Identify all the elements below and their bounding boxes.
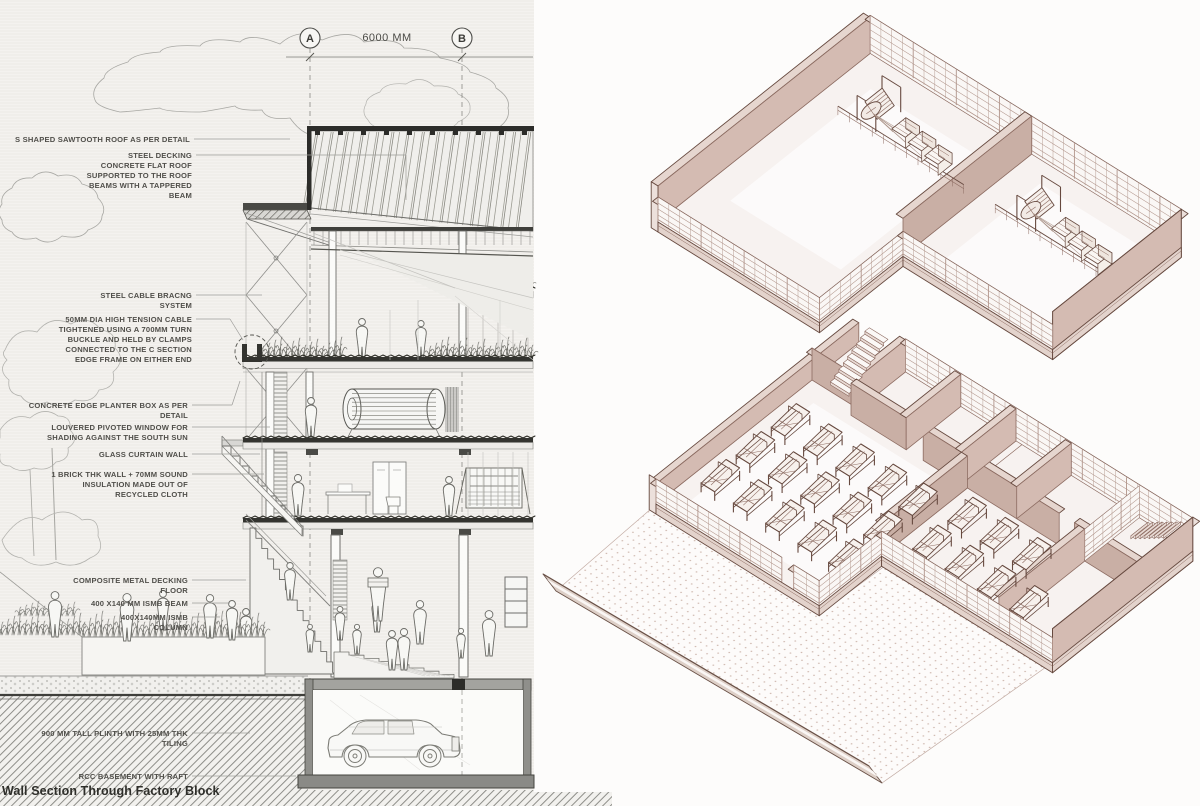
svg-text:RECYCLED CLOTH: RECYCLED CLOTH <box>115 490 188 499</box>
svg-text:INSULATION MADE OUT OF: INSULATION MADE OUT OF <box>82 480 188 489</box>
svg-text:COLUMN: COLUMN <box>153 623 188 632</box>
svg-text:CONNECTED TO THE C SECTION: CONNECTED TO THE C SECTION <box>65 345 192 354</box>
svg-text:COMPOSITE METAL DECKING: COMPOSITE METAL DECKING <box>73 576 188 585</box>
svg-text:400 X140 MM ISMB BEAM: 400 X140 MM ISMB BEAM <box>91 599 188 608</box>
svg-text:6000 MM: 6000 MM <box>362 32 411 44</box>
svg-text:EDGE FRAME ON EITHER END: EDGE FRAME ON EITHER END <box>75 355 192 364</box>
svg-text:400X140MM ISMB: 400X140MM ISMB <box>121 613 188 622</box>
svg-text:S SHAPED SAWTOOTH ROOF AS PER: S SHAPED SAWTOOTH ROOF AS PER DETAIL <box>15 135 190 144</box>
svg-text:TIGHTENED USING A 700MM TURN: TIGHTENED USING A 700MM TURN <box>59 325 192 334</box>
svg-text:CONCRETE EDGE PLANTER BOX AS P: CONCRETE EDGE PLANTER BOX AS PER <box>29 401 189 410</box>
svg-text:GLASS CURTAIN WALL: GLASS CURTAIN WALL <box>99 450 188 459</box>
svg-text:Wall Section Through Factory B: Wall Section Through Factory Block <box>2 784 220 798</box>
svg-text:FLOOR: FLOOR <box>160 586 188 595</box>
svg-text:STEEL DECKING: STEEL DECKING <box>128 151 192 160</box>
svg-text:STEEL CABLE BRACNG: STEEL CABLE BRACNG <box>100 291 192 300</box>
svg-text:900 MM TALL PLINTH WITH 25MM T: 900 MM TALL PLINTH WITH 25MM THK <box>41 729 188 738</box>
svg-text:TILING: TILING <box>162 739 188 748</box>
svg-text:CONCRETE FLAT ROOF: CONCRETE FLAT ROOF <box>101 161 192 170</box>
svg-text:DETAIL: DETAIL <box>160 411 188 420</box>
svg-text:SYSTEM: SYSTEM <box>160 301 192 310</box>
svg-text:LOUVERED PIVOTED WINDOW FOR: LOUVERED PIVOTED WINDOW FOR <box>51 423 188 432</box>
svg-text:SUPPORTED TO THE ROOF: SUPPORTED TO THE ROOF <box>87 171 192 180</box>
svg-text:BEAMS WITH A TAPPERED: BEAMS WITH A TAPPERED <box>89 181 192 190</box>
svg-text:1 BRICK THK WALL + 70MM SOUND: 1 BRICK THK WALL + 70MM SOUND <box>51 470 188 479</box>
svg-text:BUCKLE AND HELD BY CLAMPS: BUCKLE AND HELD BY CLAMPS <box>68 335 192 344</box>
svg-text:BEAM: BEAM <box>169 191 192 200</box>
svg-text:A: A <box>306 33 314 45</box>
svg-text:B: B <box>458 33 466 45</box>
svg-text:RCC BASEMENT WITH RAFT: RCC BASEMENT WITH RAFT <box>79 772 189 781</box>
svg-text:50MM DIA HIGH TENSION CABLE: 50MM DIA HIGH TENSION CABLE <box>65 315 192 324</box>
svg-text:SHADING AGAINST THE SOUTH SUN: SHADING AGAINST THE SOUTH SUN <box>47 433 188 442</box>
